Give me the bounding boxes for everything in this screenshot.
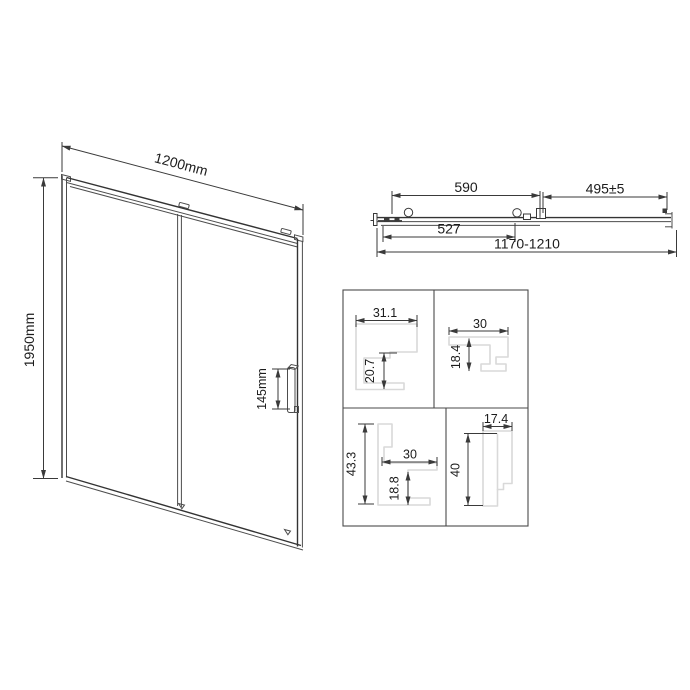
rail-right-bracket bbox=[663, 209, 673, 229]
adjustment-range-dimension: 1170-1210 bbox=[377, 228, 677, 257]
bottom-rail-profile-detail: 43.3 30 18.8 bbox=[345, 424, 438, 505]
wall-profile-detail: 31.1 20.7 bbox=[356, 306, 417, 390]
top-rail-profile-detail: 30 18.4 bbox=[449, 317, 508, 371]
panel-end-cap bbox=[537, 209, 546, 219]
vertical-profile-height-label: 40 bbox=[449, 463, 463, 477]
roller-bracket bbox=[524, 214, 531, 220]
roller-cover-right bbox=[281, 228, 292, 234]
adjustment-range-label: 1170-1210 bbox=[494, 236, 560, 252]
entry-width-label: 495±5 bbox=[586, 181, 625, 197]
profile-details: 31.1 20.7 30 18.4 43.3 30 1 bbox=[343, 290, 528, 526]
glass-width-label: 527 bbox=[437, 221, 461, 237]
bottom-guide-right bbox=[285, 530, 291, 535]
bottom-rail-width-label: 30 bbox=[403, 448, 417, 462]
vertical-profile-detail: 17.4 40 bbox=[449, 412, 513, 506]
front-height-dimension: 1950mm bbox=[21, 178, 58, 479]
wall-profile-depth-label: 20.7 bbox=[363, 359, 377, 383]
front-width-dimension: 1200mm bbox=[62, 142, 303, 235]
front-height-label: 1950mm bbox=[21, 313, 37, 367]
clamp-block-2 bbox=[395, 218, 400, 222]
door-frame bbox=[62, 175, 304, 551]
roller-2 bbox=[513, 209, 521, 217]
handle-dimension: 145mm bbox=[255, 368, 290, 410]
front-view: 1200mm 1950mm bbox=[21, 142, 303, 550]
top-view: 590 495±5 527 1170-1210 bbox=[371, 179, 677, 257]
clamp-block-1 bbox=[384, 217, 390, 222]
technical-drawing-page: 1200mm 1950mm bbox=[0, 0, 690, 690]
bottom-rail-height-label: 43.3 bbox=[345, 452, 359, 476]
handle-height-label: 145mm bbox=[255, 368, 269, 410]
front-width-label: 1200mm bbox=[153, 149, 210, 178]
panel-width-label: 590 bbox=[454, 179, 478, 195]
top-rail-width-label: 30 bbox=[473, 317, 487, 331]
wall-profile-width-label: 31.1 bbox=[373, 306, 397, 320]
vertical-profile-width-label: 17.4 bbox=[484, 412, 508, 426]
roller-1 bbox=[404, 208, 412, 216]
top-rail-plan bbox=[371, 208, 673, 228]
shower-door-technical-drawing: 1200mm 1950mm bbox=[0, 0, 690, 690]
entry-width-dimension: 495±5 bbox=[543, 181, 667, 214]
wall-profile-end bbox=[374, 214, 378, 226]
top-rail-depth-label: 18.4 bbox=[449, 345, 463, 369]
bottom-rail-depth-label: 18.8 bbox=[388, 476, 402, 500]
